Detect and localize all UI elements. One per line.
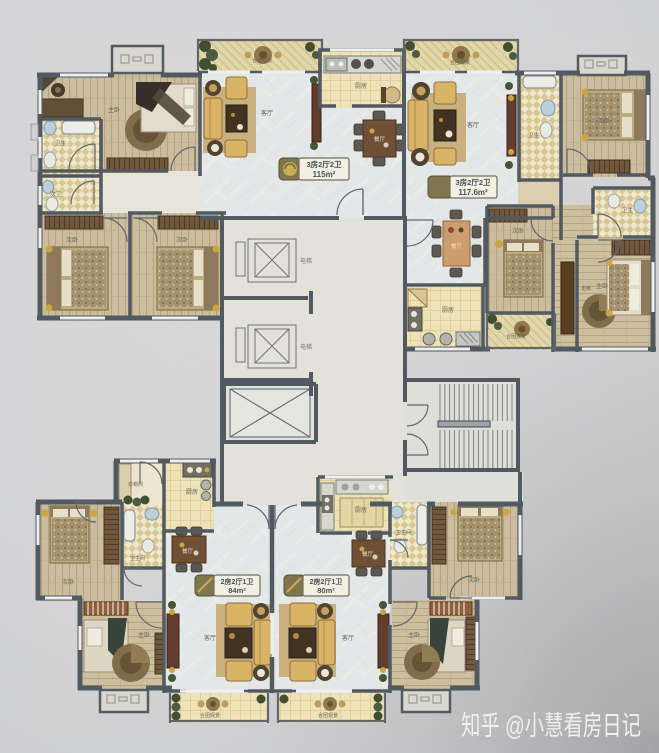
svg-text:知乎 @小慧看房日记: 知乎 @小慧看房日记 (461, 711, 641, 741)
